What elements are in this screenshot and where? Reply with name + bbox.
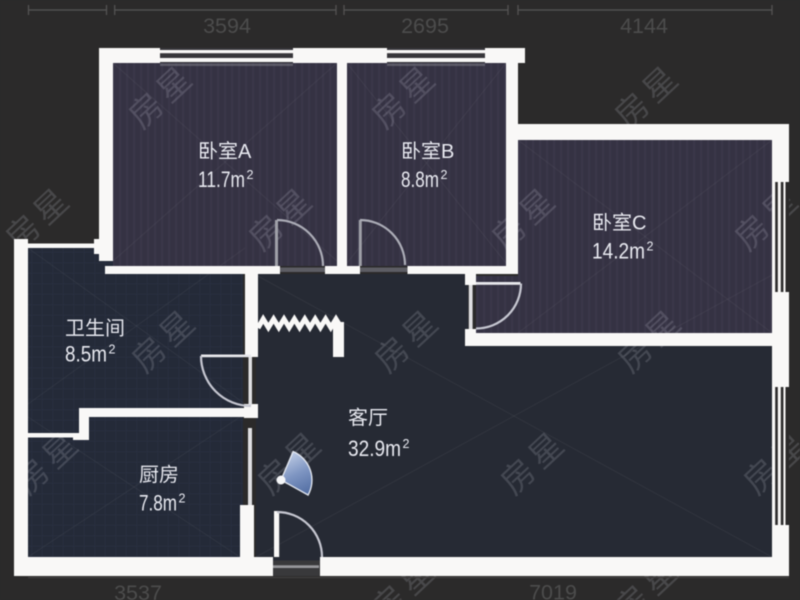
svg-text:3537: 3537 (114, 581, 162, 600)
svg-text:2: 2 (109, 343, 116, 357)
svg-text:7019: 7019 (529, 581, 577, 600)
svg-text:2: 2 (247, 168, 254, 182)
svg-text:32.9m: 32.9m (348, 436, 401, 461)
svg-text:8.5m: 8.5m (65, 342, 107, 367)
svg-text:2: 2 (403, 437, 410, 451)
svg-text:2: 2 (647, 240, 654, 254)
svg-text:14.2m: 14.2m (592, 239, 645, 264)
svg-text:11.7m: 11.7m (198, 167, 245, 192)
svg-text:4144: 4144 (620, 14, 668, 38)
svg-text:2695: 2695 (401, 14, 449, 38)
svg-text:B: B (441, 141, 454, 163)
svg-text:C: C (632, 213, 646, 235)
svg-text:2: 2 (441, 168, 448, 182)
svg-text:2: 2 (179, 492, 186, 506)
svg-text:3594: 3594 (203, 14, 251, 38)
svg-text:7.8m: 7.8m (139, 491, 177, 516)
svg-text:8.8m: 8.8m (401, 167, 439, 192)
svg-text:A: A (238, 141, 252, 163)
